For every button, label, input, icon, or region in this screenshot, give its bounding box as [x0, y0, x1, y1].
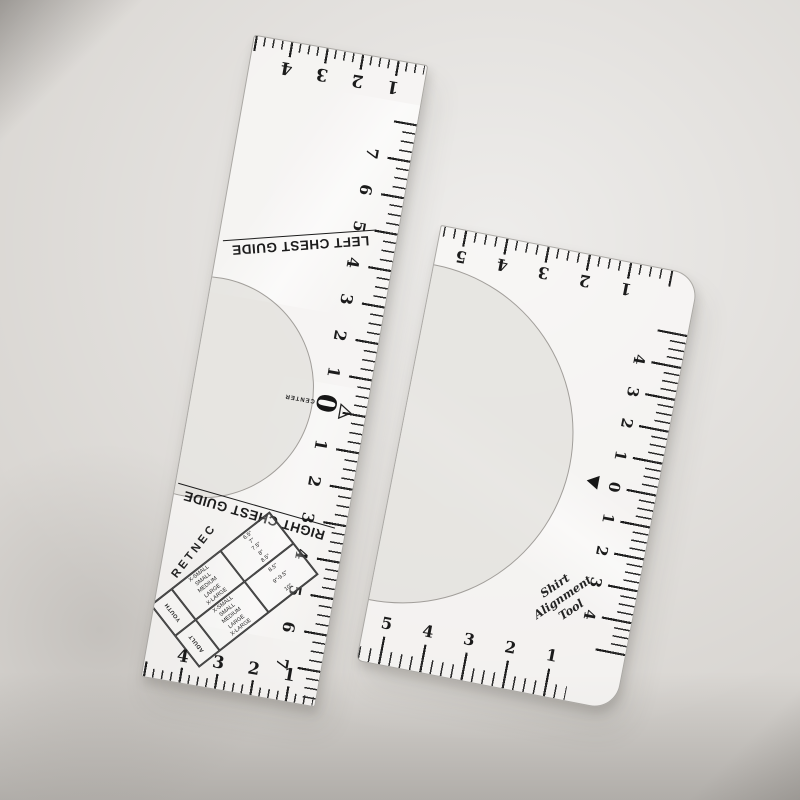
right-scale-zero: 0 — [600, 469, 628, 505]
scale-number: 3 — [615, 377, 651, 405]
center-marker-icon — [337, 403, 353, 421]
scale-number: 3 — [447, 626, 492, 653]
scale-number: 1 — [602, 441, 638, 469]
center-marker-icon — [584, 472, 601, 490]
scale-number: 1 — [313, 357, 354, 387]
scale-number: 2 — [608, 409, 644, 437]
scale-number: 1 — [590, 505, 626, 533]
scale-number: 2 — [488, 634, 533, 661]
scale-number: 4 — [333, 248, 374, 278]
photo-background-surface: 4 3 2 1 7 6 5 4 3 2 1 CENTER 0 1 2 3 — [0, 0, 800, 800]
scale-number: 0 — [596, 473, 632, 501]
scale-number: 2 — [294, 466, 335, 496]
scale-number: 2 — [320, 321, 361, 351]
scale-number: 7 — [352, 138, 393, 168]
scale-number: 1 — [529, 642, 574, 669]
scale-number: 6 — [345, 175, 386, 205]
shirt-alignment-tool: 5 4 3 2 1 4 3 2 1 0 1 2 3 4 — [356, 225, 700, 711]
scale-number: 4 — [621, 345, 657, 373]
scale-number: 6 — [268, 612, 309, 642]
scale-number: 1 — [300, 430, 341, 460]
scale-number: 3 — [326, 284, 367, 314]
center-zero: 0 — [308, 391, 342, 416]
scale-number: 4 — [406, 618, 451, 645]
scale-number: 5 — [364, 610, 409, 637]
